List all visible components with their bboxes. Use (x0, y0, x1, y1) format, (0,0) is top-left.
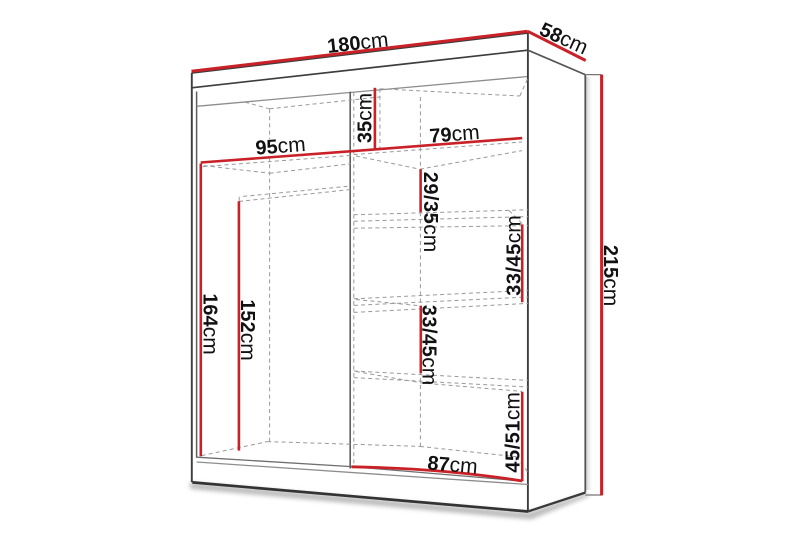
svg-text:87cm: 87cm (427, 451, 479, 478)
svg-text:79cm: 79cm (429, 121, 481, 148)
svg-text:215cm: 215cm (599, 245, 622, 306)
svg-text:35cm: 35cm (354, 93, 377, 143)
svg-text:45/51cm: 45/51cm (502, 392, 525, 473)
svg-text:164cm: 164cm (199, 293, 222, 354)
svg-text:29/35cm: 29/35cm (419, 172, 442, 253)
svg-text:152cm: 152cm (236, 299, 259, 360)
svg-text:33/45cm: 33/45cm (503, 215, 526, 296)
svg-text:33/45cm: 33/45cm (417, 305, 440, 386)
svg-text:95cm: 95cm (255, 133, 307, 160)
